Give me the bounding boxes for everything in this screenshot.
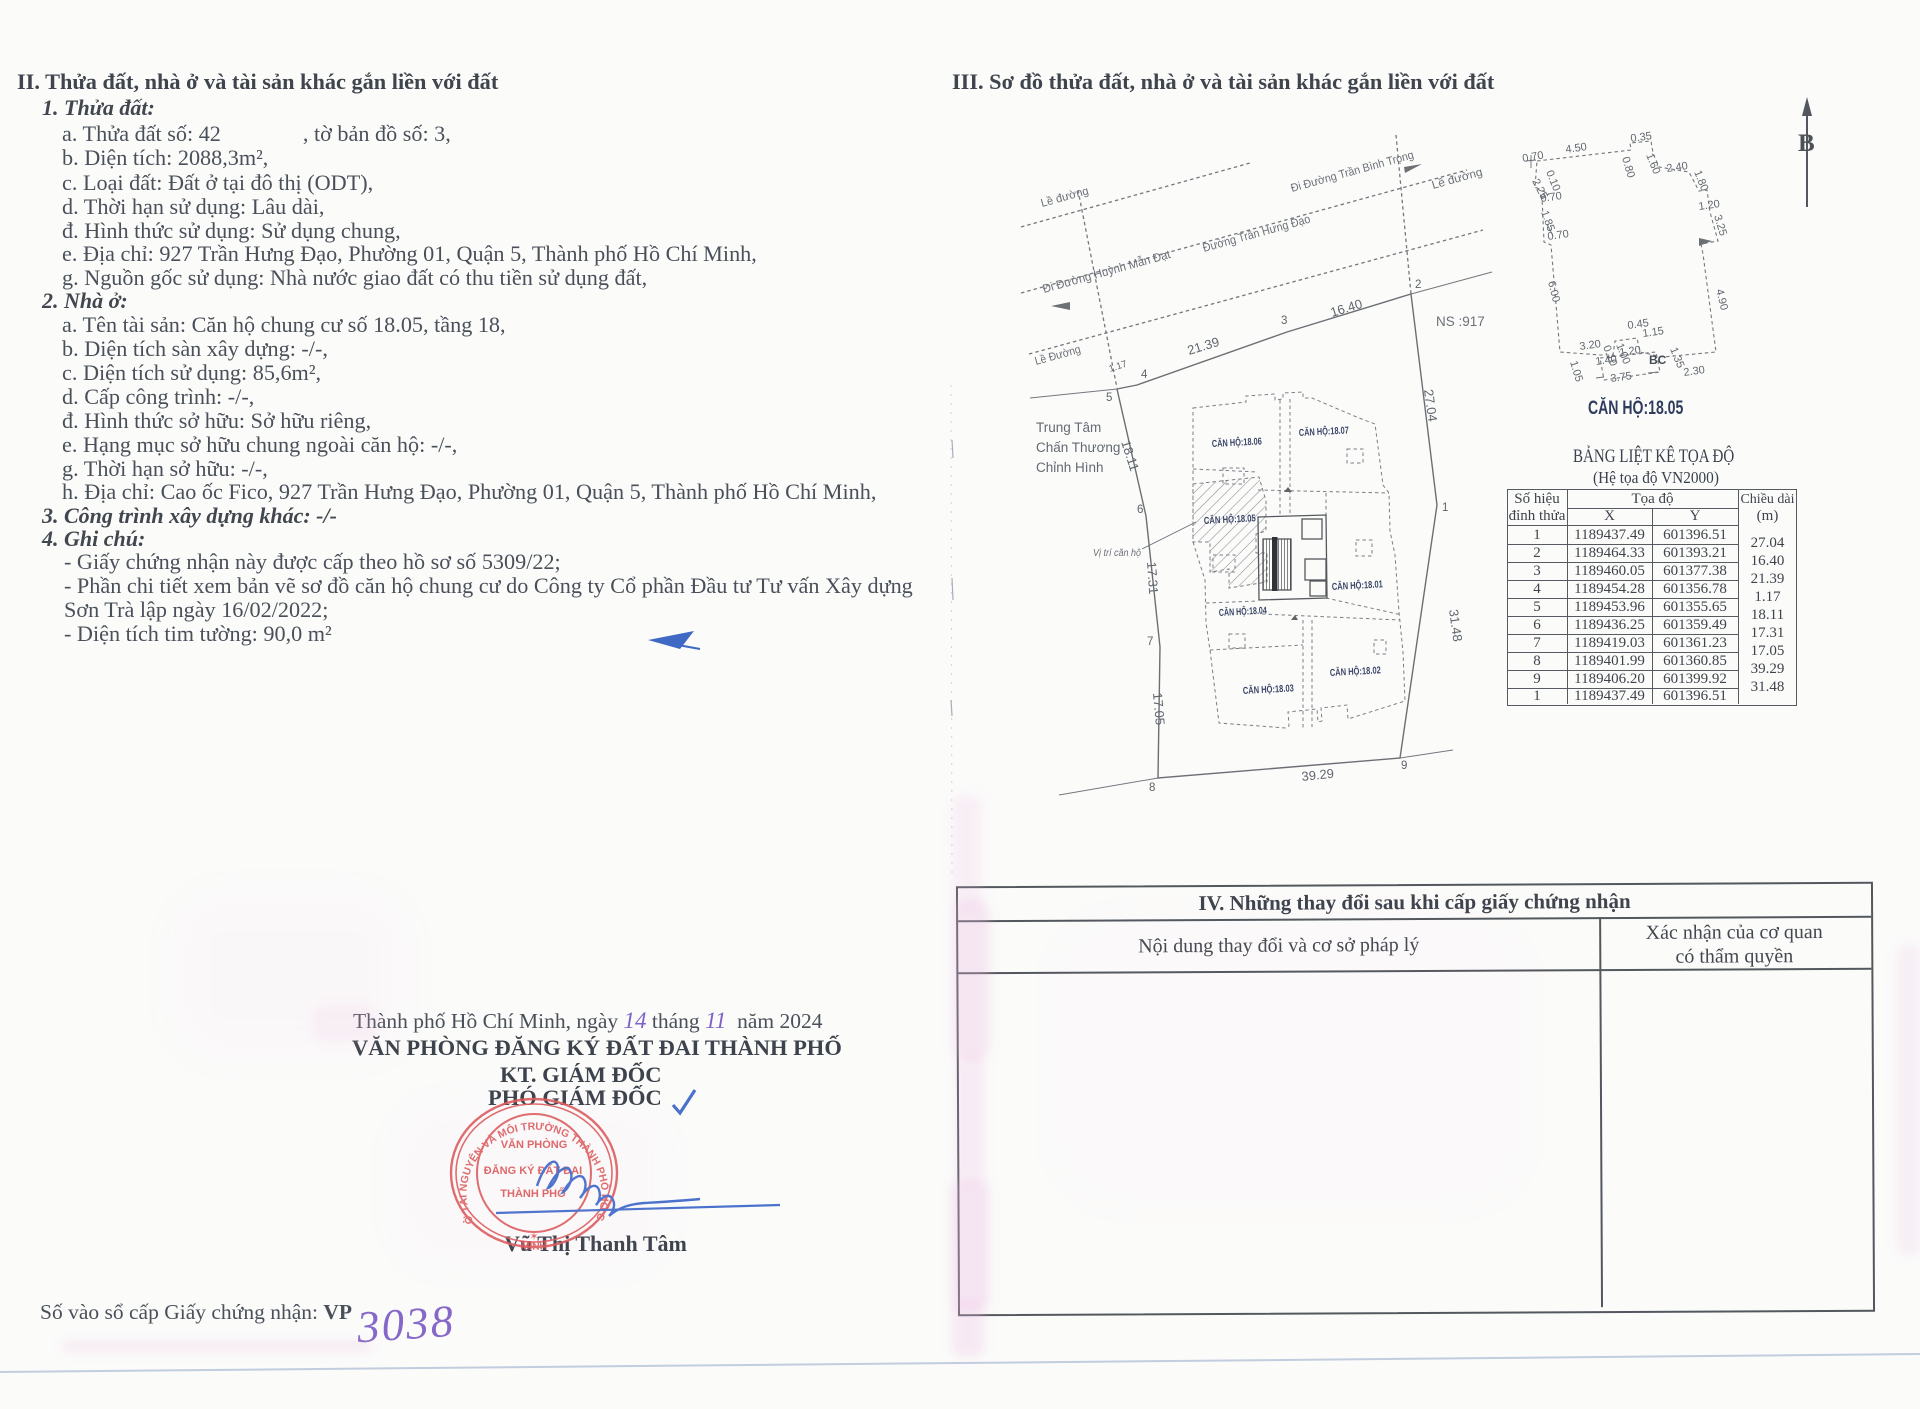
svg-text:Vị trí căn hộ: Vị trí căn hộ [1093, 547, 1141, 559]
svg-text:1.20: 1.20 [1619, 344, 1642, 359]
svg-text:3.25: 3.25 [1711, 213, 1729, 237]
svg-text:1: 1 [1442, 502, 1448, 514]
svg-text:Chấn Thương: Chấn Thương [1036, 440, 1120, 455]
svg-text:CĂN HỘ:18.07: CĂN HỘ:18.07 [1298, 423, 1349, 439]
svg-text:1.20: 1.20 [1698, 198, 1721, 213]
svg-text:17.31: 17.31 [1144, 561, 1161, 595]
svg-text:4.90: 4.90 [1713, 288, 1730, 312]
svg-text:B: B [1798, 130, 1815, 157]
svg-text:39.29: 39.29 [1301, 766, 1335, 784]
svg-text:4.50: 4.50 [1565, 141, 1588, 156]
svg-text:Lề Đường: Lề Đường [1034, 344, 1082, 368]
svg-text:Đường Trần Hưng Đạo: Đường Trần Hưng Đạo [1201, 212, 1312, 255]
svg-text:Đi Đường Huỳnh Mẫn Đạt: Đi Đường Huỳnh Mẫn Đạt [1041, 246, 1173, 296]
svg-text:4: 4 [1141, 369, 1148, 381]
svg-text:5: 5 [1106, 392, 1112, 404]
svg-text:CĂN HỘ:18.02: CĂN HỘ:18.02 [1329, 663, 1381, 679]
svg-text:16.40: 16.40 [1328, 296, 1364, 320]
svg-text:CĂN HỘ:18.06: CĂN HỘ:18.06 [1211, 434, 1262, 450]
svg-text:2.30: 2.30 [1683, 364, 1706, 379]
svg-text:7: 7 [1147, 636, 1153, 648]
svg-text:CĂN HỘ:18.01: CĂN HỘ:18.01 [1331, 577, 1383, 593]
svg-text:3: 3 [1281, 315, 1287, 327]
svg-text:6.00: 6.00 [1545, 280, 1562, 304]
svg-text:0.70: 0.70 [1540, 190, 1563, 205]
svg-text:3.20: 3.20 [1579, 338, 1602, 353]
svg-text:BC: BC [1649, 353, 1667, 367]
svg-text:0.70: 0.70 [1521, 149, 1544, 165]
svg-text:18.11: 18.11 [1118, 438, 1142, 473]
svg-text:2: 2 [1415, 279, 1421, 291]
svg-text:0.70: 0.70 [1547, 228, 1570, 243]
svg-text:6: 6 [1137, 504, 1143, 516]
svg-text:1.17: 1.17 [1108, 359, 1129, 375]
svg-text:0.35: 0.35 [1630, 130, 1653, 145]
svg-text:1.15: 1.15 [1642, 325, 1665, 340]
svg-text:NS :917: NS :917 [1436, 314, 1485, 329]
svg-text:1.60: 1.60 [1643, 152, 1662, 176]
svg-text:Chỉnh Hình: Chỉnh Hình [1036, 460, 1104, 475]
svg-text:0.80: 0.80 [1619, 155, 1637, 179]
svg-text:27.04: 27.04 [1421, 388, 1440, 422]
svg-text:31.48: 31.48 [1446, 608, 1465, 642]
svg-text:9: 9 [1401, 760, 1407, 772]
svg-text:1.40: 1.40 [1595, 353, 1618, 368]
svg-text:21.39: 21.39 [1185, 334, 1221, 358]
svg-text:2.40: 2.40 [1666, 160, 1689, 175]
svg-text:Trung Tâm: Trung Tâm [1036, 420, 1101, 435]
svg-text:Lề đường: Lề đường [1431, 166, 1484, 191]
svg-text:8: 8 [1149, 782, 1155, 794]
svg-text:CĂN HỘ:18.04: CĂN HỘ:18.04 [1218, 603, 1267, 619]
svg-text:Lề đường: Lề đường [1040, 185, 1090, 210]
svg-text:1.05: 1.05 [1567, 359, 1585, 383]
svg-text:CĂN HỘ:18.03: CĂN HỘ:18.03 [1242, 681, 1294, 697]
svg-text:Đi Đường Trần Bình Trọng: Đi Đường Trần Bình Trọng [1290, 149, 1416, 195]
svg-text:3.75: 3.75 [1610, 370, 1633, 385]
svg-text:17.05: 17.05 [1150, 692, 1168, 726]
